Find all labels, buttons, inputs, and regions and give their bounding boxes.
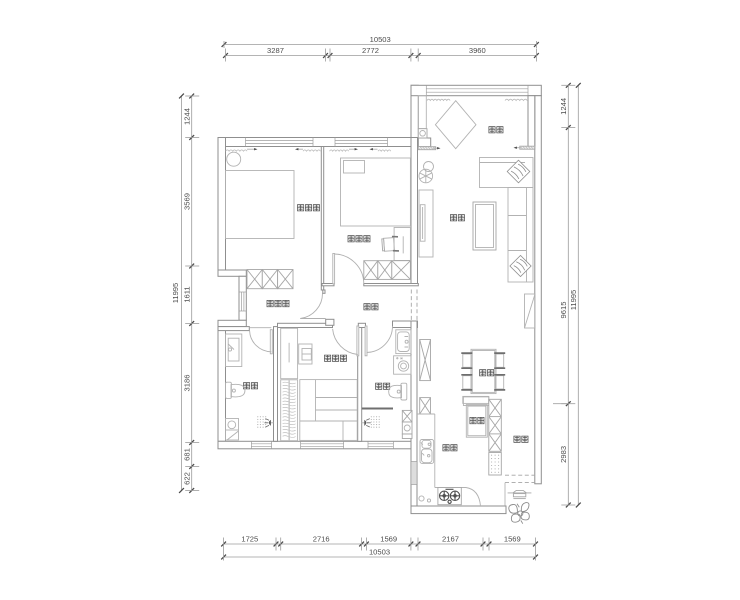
svg-text:10503: 10503 xyxy=(370,35,391,44)
svg-text:622: 622 xyxy=(182,472,191,485)
svg-text:11995: 11995 xyxy=(569,290,578,311)
svg-text:3960: 3960 xyxy=(469,46,486,55)
svg-text:2716: 2716 xyxy=(313,535,330,544)
svg-text:2772: 2772 xyxy=(362,46,379,55)
svg-text:3186: 3186 xyxy=(182,375,191,392)
svg-text:1569: 1569 xyxy=(504,535,521,544)
svg-text:3287: 3287 xyxy=(267,46,284,55)
svg-text:1244: 1244 xyxy=(182,108,191,125)
svg-text:1611: 1611 xyxy=(182,286,191,302)
svg-text:1569: 1569 xyxy=(380,535,397,544)
svg-text:10503: 10503 xyxy=(369,548,390,557)
svg-text:2983: 2983 xyxy=(559,446,568,463)
svg-text:681: 681 xyxy=(182,448,191,461)
svg-text:3569: 3569 xyxy=(182,193,191,210)
svg-text:1244: 1244 xyxy=(559,98,568,115)
svg-text:2167: 2167 xyxy=(442,535,459,544)
svg-text:11995: 11995 xyxy=(171,283,180,304)
svg-text:1725: 1725 xyxy=(241,535,258,544)
svg-text:9615: 9615 xyxy=(559,302,568,319)
